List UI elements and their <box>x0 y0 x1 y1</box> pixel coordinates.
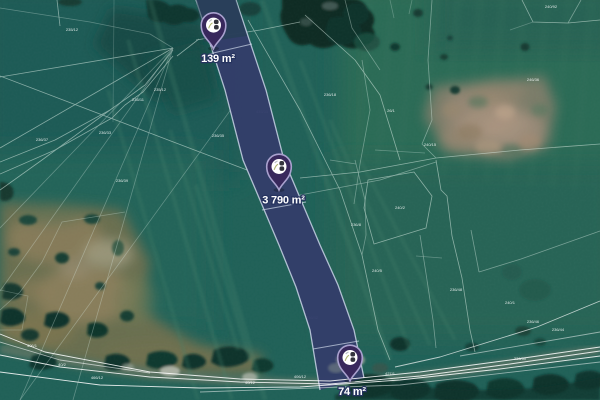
svg-text:240/15: 240/15 <box>424 142 437 147</box>
svg-text:236/35: 236/35 <box>212 133 225 138</box>
svg-text:466/12: 466/12 <box>91 375 104 380</box>
svg-text:236/44: 236/44 <box>552 327 565 332</box>
svg-text:236/8: 236/8 <box>351 222 362 227</box>
svg-text:3 790 m²: 3 790 m² <box>262 195 305 207</box>
svg-text:240/2: 240/2 <box>395 205 406 210</box>
svg-text:235/12: 235/12 <box>154 87 167 92</box>
svg-text:236/37: 236/37 <box>36 137 49 142</box>
svg-text:246/36: 246/36 <box>527 77 540 82</box>
svg-text:240/92: 240/92 <box>545 4 558 9</box>
svg-text:26/1: 26/1 <box>387 108 396 113</box>
svg-text:235/12: 235/12 <box>66 27 79 32</box>
svg-text:236/46: 236/46 <box>527 319 540 324</box>
svg-text:40/2: 40/2 <box>58 362 67 367</box>
svg-text:235/11: 235/11 <box>132 97 145 102</box>
svg-text:236/48: 236/48 <box>450 287 463 292</box>
svg-text:240/5: 240/5 <box>372 268 383 273</box>
svg-text:236/33: 236/33 <box>99 130 112 135</box>
svg-text:236/18: 236/18 <box>324 92 337 97</box>
svg-text:74 m²: 74 m² <box>338 386 366 398</box>
svg-text:236/39: 236/39 <box>116 178 129 183</box>
svg-text:240/1: 240/1 <box>505 300 516 305</box>
svg-text:139 m²: 139 m² <box>201 53 235 65</box>
svg-text:406/12: 406/12 <box>294 374 307 379</box>
